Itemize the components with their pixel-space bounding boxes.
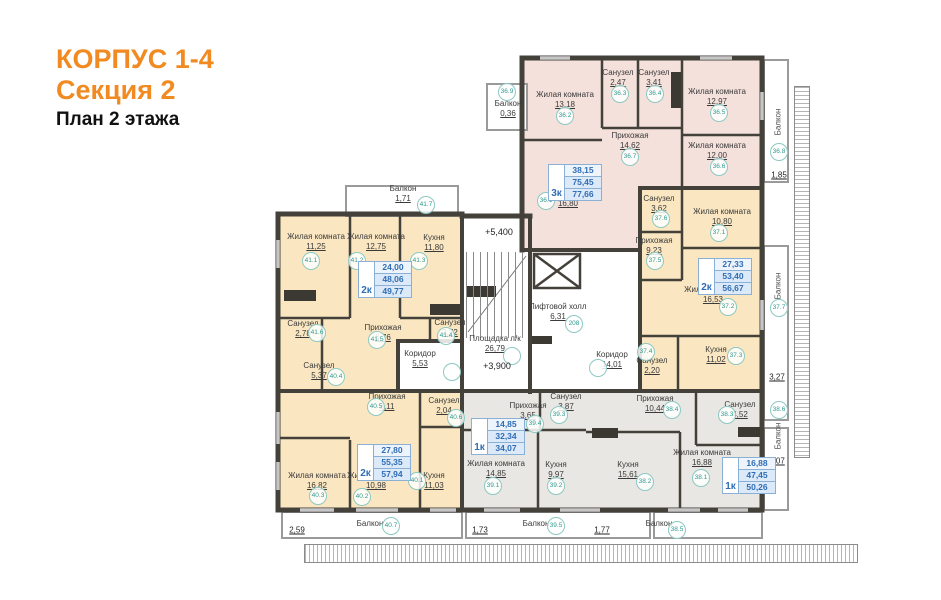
apartment-values: 24,00 48,06 49,77 [375, 262, 411, 297]
dimension-label: 3,27 [769, 373, 785, 382]
room-area: 11,02 [705, 355, 726, 365]
apartment-total-area: 57,94 [374, 469, 410, 480]
balcony-vertical-label: Балкон [774, 273, 783, 300]
room-number-badge: 36.4 [646, 85, 664, 103]
apartment-living-area: 38,15 [565, 165, 601, 177]
room-number-badge: 41.1 [302, 252, 320, 270]
room-name: Санузел [638, 68, 669, 77]
room-name: Санузел [550, 392, 581, 401]
apartment-area: 48,06 [375, 274, 411, 286]
room-name: Балкон [523, 519, 550, 528]
room-label: Балкон [523, 519, 550, 529]
apartment-type: 2к [699, 259, 715, 294]
room-number-badge: 36.2 [556, 107, 574, 125]
room-label: Жилая комната 11,25 [287, 232, 345, 252]
room-label: Кухня 11,03 [423, 471, 444, 491]
room-label: Балкон 0,36 [495, 99, 522, 119]
apartment-type: 2к [358, 445, 374, 480]
room-number-badge: 41.3 [410, 252, 428, 270]
dimension-label: 1,73 [472, 526, 488, 535]
apartment-living-area: 24,00 [375, 262, 411, 274]
room-name: Санузел [602, 68, 633, 77]
apartment-area: 32,34 [488, 431, 524, 443]
room-name: Жилая комната [467, 459, 525, 468]
room-name: Коридор [596, 350, 628, 359]
apartment-area: 75,45 [565, 177, 601, 189]
room-number-badge: 38.3 [718, 406, 736, 424]
room-number-badge: 36.8 [770, 143, 788, 161]
room-name: Санузел [643, 194, 674, 203]
room-name: Кухня [705, 345, 726, 354]
room-area: 11,03 [423, 481, 444, 491]
apartment-summary: 1к 14,85 32,34 34,07 [471, 418, 525, 455]
room-area: 5,53 [404, 359, 436, 369]
apartment-summary: 3к 38,15 75,45 77,66 [548, 164, 602, 201]
room-number-badge: 38.2 [636, 473, 654, 491]
apartment-summary: 2к 27,80 55,35 57,94 [357, 444, 411, 481]
room-area: 11,80 [423, 243, 444, 253]
apartment-values: 16,88 47,45 50,26 [739, 458, 775, 493]
apartment-living-area: 16,88 [739, 458, 775, 470]
room-number-badge: 40.2 [353, 488, 371, 506]
dimension-label: 1,77 [594, 526, 610, 535]
room-area: 12,75 [347, 242, 405, 252]
balcony-vertical-label: Балкон [774, 109, 783, 136]
room-number-badge: 36.6 [710, 158, 728, 176]
room-number-badge: 38.5 [668, 521, 686, 539]
room-number-badge: 40.3 [309, 487, 327, 505]
apartment-area: 55,35 [374, 457, 410, 469]
room-name: Жилая комната [693, 207, 751, 216]
room-area: 11,25 [287, 242, 345, 252]
room-number-badge: 37.2 [719, 298, 737, 316]
apartment-total-area: 77,66 [565, 189, 601, 200]
apartment-total-area: 56,67 [715, 283, 751, 294]
room-number-badge: 37.3 [727, 347, 745, 365]
apartment-total-area: 50,26 [739, 482, 775, 493]
room-label: Кухня 11,02 [705, 345, 726, 365]
level-mark: +5,400 [485, 227, 513, 237]
room-number-badge: 36.3 [611, 85, 629, 103]
room-number-badge: 41.7 [417, 196, 435, 214]
dimension-label: 1,85 [771, 171, 787, 180]
apartment-type: 2к [359, 262, 375, 297]
dimension-label: 2,59 [289, 526, 305, 535]
room-name: Прихожая [635, 236, 672, 245]
room-name: Лифтовой холл [530, 302, 587, 311]
room-number-badge: 37.4 [637, 343, 655, 361]
room-number-badge: 37.7 [770, 299, 788, 317]
room-number-badge: 39.1 [484, 477, 502, 495]
room-number-badge: 40.4 [327, 368, 345, 386]
apartment-summary: 2к 24,00 48,06 49,77 [358, 261, 412, 298]
apartment-type: 1к [723, 458, 739, 493]
room-name: Санузел [434, 318, 465, 327]
room-label: Балкон [357, 519, 384, 529]
room-name: Кухня [423, 233, 444, 242]
room-number-badge: 40.5 [367, 398, 385, 416]
room-number-badge: 37.5 [646, 252, 664, 270]
room-area: 0,36 [495, 109, 522, 119]
room-name: Жилая комната [347, 232, 405, 241]
level-mark: +3,900 [483, 361, 511, 371]
apartment-total-area: 49,77 [375, 286, 411, 297]
apartment-values: 38,15 75,45 77,66 [565, 165, 601, 200]
apartment-values: 27,33 53,40 56,67 [715, 259, 751, 294]
room-number-badge: 36.5 [710, 104, 728, 122]
room-number-badge [443, 363, 461, 381]
room-name: Санузел [428, 396, 459, 405]
room-label: Коридор 5,53 [404, 349, 436, 369]
room-name: Кухня [423, 471, 444, 480]
staircase [466, 252, 528, 338]
room-label: Жилая комната 14,85 [467, 459, 525, 479]
room-number-badge [589, 359, 607, 377]
room-number-badge: 39.3 [550, 406, 568, 424]
room-number-badge: 38.6 [770, 401, 788, 419]
room-name: Прихожая [611, 131, 648, 140]
room-number-badge: 41.4 [437, 327, 455, 345]
apartment-summary: 1к 16,88 47,45 50,26 [722, 457, 776, 494]
room-name: Прихожая [364, 323, 401, 332]
room-number-badge: 39.4 [526, 415, 544, 433]
room-name: Жилая комната [688, 87, 746, 96]
room-number-badge: 36.9 [498, 83, 516, 101]
apartment-living-area: 27,33 [715, 259, 751, 271]
hatch-strip-bottom [304, 544, 858, 563]
room-number-badge: 208 [565, 315, 583, 333]
room-number-badge: 36.7 [621, 148, 639, 166]
room-name: Жилая комната [688, 141, 746, 150]
room-label: Жилая комната 12,75 [347, 232, 405, 252]
room-number-badge: 38.1 [692, 469, 710, 487]
room-number-badge: 37.6 [652, 210, 670, 228]
room-number-badge: 38.4 [663, 401, 681, 419]
room-number-badge: 37.1 [710, 224, 728, 242]
apartment-type: 1к [472, 419, 488, 454]
room-name: Балкон [390, 184, 417, 193]
room-label: Кухня 11,80 [423, 233, 444, 253]
room-name: Коридор [404, 349, 436, 358]
room-area: 1,71 [390, 194, 417, 204]
room-number-badge: 40.6 [447, 409, 465, 427]
apartment-total-area: 34,07 [488, 443, 524, 454]
apartment-living-area: 14,85 [488, 419, 524, 431]
room-label: Балкон 1,71 [390, 184, 417, 204]
room-name: Прихожая [509, 401, 546, 410]
room-number-badge: 41.5 [368, 331, 386, 349]
room-area: 2,20 [636, 366, 667, 376]
room-name: Кухня [545, 460, 566, 469]
apartment-summary: 2к 27,33 53,40 56,67 [698, 258, 752, 295]
room-name: Жилая комната [673, 448, 731, 457]
room-name: Балкон [357, 519, 384, 528]
apartment-type: 3к [549, 165, 565, 200]
room-label: Кухня 15,61 [617, 460, 638, 480]
room-name: Жилая комната [536, 90, 594, 99]
room-name: Площадка л/к [469, 334, 520, 343]
apartment-living-area: 27,80 [374, 445, 410, 457]
apartment-area: 47,45 [739, 470, 775, 482]
room-name: Жилая комната [287, 232, 345, 241]
room-name: Кухня [617, 460, 638, 469]
elevator-shaft [534, 254, 580, 288]
room-number-badge: 39.5 [547, 517, 565, 535]
room-number-badge: 39.2 [547, 477, 565, 495]
room-name: Жилая комната [288, 471, 346, 480]
floor-plan-page: КОРПУС 1-4 Секция 2 План 2 этажа [0, 0, 941, 600]
apartment-values: 27,80 55,35 57,94 [374, 445, 410, 480]
room-number-badge: 40.7 [382, 517, 400, 535]
balcony-vertical-label: Балкон [774, 423, 783, 450]
apartment-area: 53,40 [715, 271, 751, 283]
room-number-badge: 41.6 [308, 324, 326, 342]
hatch-strip-right [794, 86, 810, 458]
apartment-values: 14,85 32,34 34,07 [488, 419, 524, 454]
